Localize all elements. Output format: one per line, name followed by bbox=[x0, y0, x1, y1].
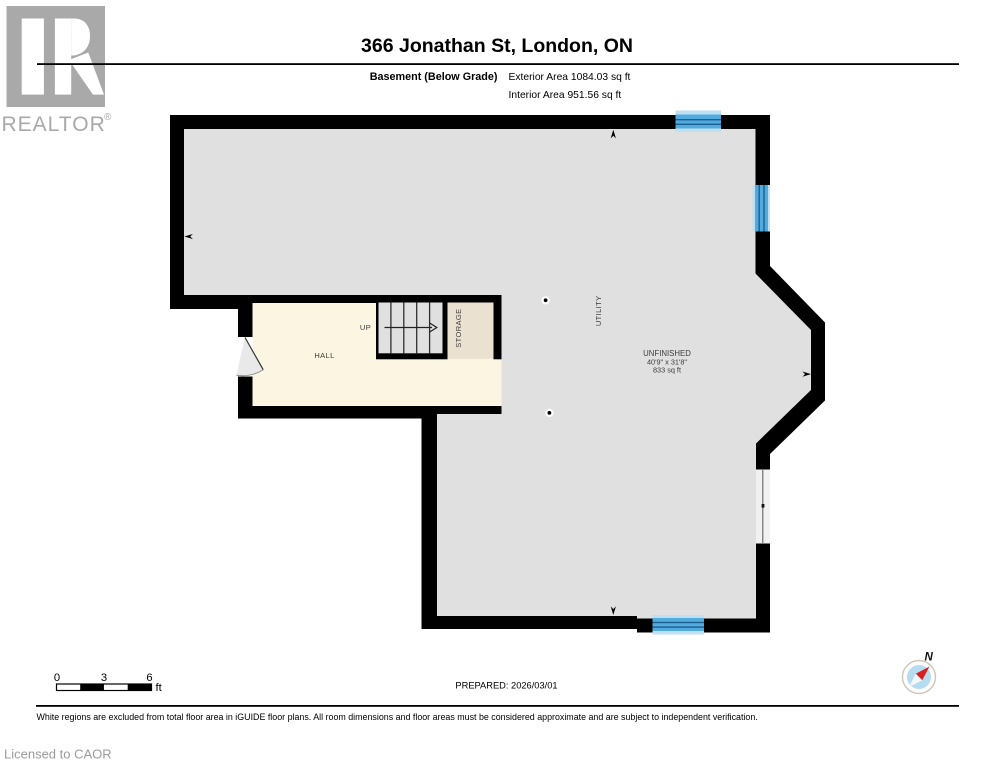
svg-text:REALTOR: REALTOR bbox=[2, 113, 106, 136]
svg-text:366 Jonathan St, London, ON: 366 Jonathan St, London, ON bbox=[361, 35, 633, 57]
svg-text:UTILITY: UTILITY bbox=[594, 295, 603, 326]
svg-text:ft: ft bbox=[156, 682, 163, 694]
svg-text:STORAGE: STORAGE bbox=[454, 308, 463, 347]
svg-text:6: 6 bbox=[146, 672, 152, 684]
svg-text:UP: UP bbox=[360, 323, 371, 332]
svg-text:833 sq ft: 833 sq ft bbox=[653, 365, 681, 374]
svg-text:Basement (Below Grade): Basement (Below Grade) bbox=[370, 71, 498, 83]
svg-text:Interior Area 951.56 sq ft: Interior Area 951.56 sq ft bbox=[509, 90, 622, 101]
svg-text:PREPARED: 2026/03/01: PREPARED: 2026/03/01 bbox=[455, 681, 557, 691]
svg-text:Exterior Area 1084.03 sq ft: Exterior Area 1084.03 sq ft bbox=[509, 72, 631, 83]
svg-text:3: 3 bbox=[101, 672, 107, 684]
svg-text:White regions are excluded fro: White regions are excluded from total fl… bbox=[37, 712, 758, 722]
svg-text:0: 0 bbox=[54, 672, 60, 684]
svg-text:Licensed to CAOR: Licensed to CAOR bbox=[4, 747, 112, 762]
svg-text:HALL: HALL bbox=[314, 351, 334, 360]
svg-text:N: N bbox=[925, 652, 934, 664]
svg-text:®: ® bbox=[104, 112, 112, 123]
